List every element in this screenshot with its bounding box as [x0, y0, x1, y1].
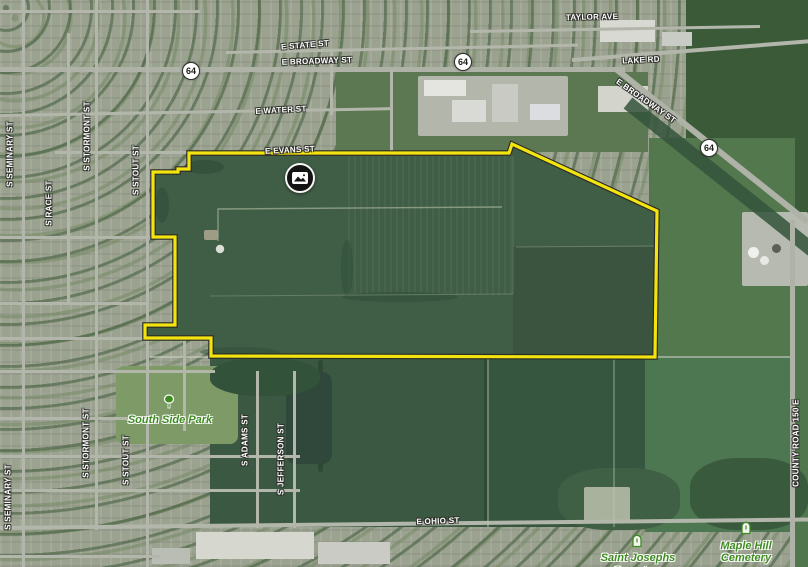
route-64-label: 64 [704, 143, 714, 153]
landmark-label-south-side-park[interactable]: South Side Park [128, 414, 212, 426]
street-label-lake-rd: LAKE RD [622, 55, 660, 66]
street-label-s-seminary-st-south: S SEMINARY ST [4, 464, 13, 530]
road-s-race-st [67, 33, 70, 305]
road-county-150e [790, 220, 795, 567]
tree-canopy-south-of-boundary [210, 358, 320, 396]
street-label-s-jefferson-st: S JEFFERSON ST [277, 423, 286, 495]
tank-white-1 [748, 247, 759, 258]
farm-lane [218, 207, 502, 241]
road-s-stormont-st [95, 0, 98, 530]
route-64-shield-west: 64 [182, 62, 200, 80]
photo-icon [292, 172, 308, 184]
tombstone-icon [631, 534, 643, 553]
farm-pond [216, 245, 224, 253]
warehouse-roof-north-2 [662, 32, 692, 46]
cemetery-plots [584, 487, 630, 522]
street-label-taylor-ave: TAYLOR AVE [566, 12, 618, 22]
street-label-s-adams-st: S ADAMS ST [241, 414, 250, 466]
property-boundary-yellow [145, 144, 657, 357]
street-label-s-stout-st-south: S STOUT ST [122, 435, 131, 485]
tank-white-2 [760, 256, 769, 265]
property-boundary-outline [145, 144, 657, 357]
farm-road-x613 [613, 357, 615, 527]
route-64-label: 64 [186, 66, 196, 76]
industrial-roof-4 [530, 104, 560, 120]
warehouse-roof-north [600, 20, 655, 42]
tree-icon [162, 394, 176, 414]
street-label-e-water-st: E WATER ST [255, 104, 307, 116]
road-y418 [0, 417, 140, 420]
road-e-state-st [226, 44, 578, 54]
street-label-e-evans-st: E EVANS ST [265, 144, 315, 156]
tombstone-icon [740, 521, 752, 540]
road-s-stout-st [146, 0, 149, 567]
photo-marker[interactable] [285, 163, 315, 193]
road-x390 [390, 70, 393, 153]
route-64-shield-center: 64 [454, 53, 472, 71]
industrial-roof-2 [452, 100, 486, 122]
industrial-roof-bottom-1 [196, 532, 314, 559]
street-label-s-stormont-st-south: S STORMONT ST [82, 408, 91, 478]
street-label-e-ohio-st: E OHIO ST [416, 516, 459, 527]
landmark-label-maple-hill-line1[interactable]: Maple Hill [720, 540, 771, 552]
industrial-roof-3 [492, 84, 518, 122]
road-y455 [0, 455, 300, 458]
road-e-evans-st [55, 151, 395, 154]
street-label-s-race-st: S RACE ST [45, 180, 54, 225]
landmark-label-maple-hill-line2[interactable]: Cemetery [721, 552, 771, 564]
street-label-s-stormont-st-north: S STORMONT ST [83, 101, 92, 171]
street-label-s-seminary-st-north: S SEMINARY ST [6, 121, 15, 187]
road-y490 [0, 489, 300, 492]
route-64-label: 64 [458, 57, 468, 67]
property-fill [145, 144, 657, 357]
industrial-roof-1 [424, 80, 466, 96]
aerial-map-canvas[interactable]: 64 64 64 TAYLOR AVE E STATE ST E BROADWA… [0, 0, 808, 567]
farmstead [204, 230, 218, 240]
road-y338 [0, 337, 212, 340]
road-farm-south-boundary [150, 356, 795, 358]
street-label-s-stout-st-north: S STOUT ST [132, 145, 141, 195]
street-label-e-broadway-st: E BROADWAY ST [282, 55, 353, 66]
route-64-shield-east: 64 [700, 139, 718, 157]
farm-road-x487 [487, 357, 489, 527]
street-label-county-road-150-e: COUNTY ROAD 150 E [792, 399, 801, 487]
road-e-broadway-st [0, 67, 625, 72]
landmark-label-saint-josephs[interactable]: Saint Josephs [601, 552, 676, 564]
tank-dark [772, 244, 781, 253]
road-s-adams-st [256, 371, 259, 528]
industrial-roof-bottom-2 [318, 542, 390, 564]
road-e-water-st [0, 107, 392, 117]
road-top-left [0, 10, 200, 13]
road-s-jefferson-st [293, 371, 296, 528]
road-s-seminary-st [22, 0, 25, 567]
